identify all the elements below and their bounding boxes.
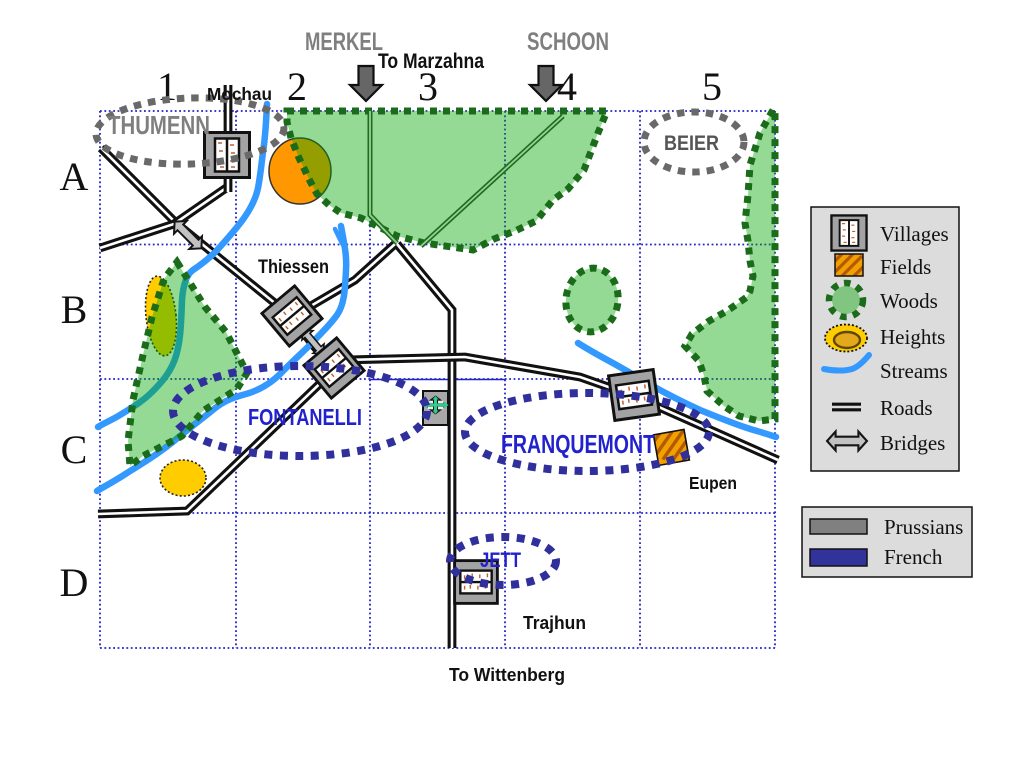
svg-text:To Marzahna: To Marzahna: [378, 50, 484, 73]
svg-text:Mochau: Mochau: [207, 84, 272, 104]
svg-text:C: C: [61, 427, 88, 472]
svg-text:Fields: Fields: [880, 255, 931, 279]
svg-text:Woods: Woods: [880, 289, 938, 313]
svg-text:Bridges: Bridges: [880, 431, 945, 455]
svg-text:French: French: [884, 545, 943, 569]
svg-text:Prussians: Prussians: [884, 515, 963, 539]
svg-text:Trajhun: Trajhun: [523, 612, 586, 633]
svg-text:Villages: Villages: [880, 222, 949, 246]
svg-text:Eupen: Eupen: [689, 473, 737, 493]
svg-text:2: 2: [287, 64, 307, 109]
svg-text:MERKEL: MERKEL: [305, 28, 383, 56]
svg-text:Roads: Roads: [880, 396, 933, 420]
svg-text:Streams: Streams: [880, 359, 948, 383]
svg-text:BEIER: BEIER: [664, 132, 719, 155]
svg-text:SCHOON: SCHOON: [527, 28, 609, 56]
svg-text:To Wittenberg: To Wittenberg: [449, 665, 565, 685]
svg-text:THUMENN: THUMENN: [108, 110, 210, 140]
svg-text:FRANQUEMONT: FRANQUEMONT: [501, 429, 655, 459]
svg-text:FONTANELLI: FONTANELLI: [248, 404, 362, 430]
svg-text:Heights: Heights: [880, 325, 945, 349]
svg-text:Thiessen: Thiessen: [258, 257, 329, 278]
svg-text:5: 5: [702, 64, 722, 109]
svg-text:JETT: JETT: [480, 549, 521, 572]
svg-text:A: A: [60, 154, 89, 199]
svg-text:B: B: [61, 287, 88, 332]
svg-text:D: D: [60, 560, 89, 605]
